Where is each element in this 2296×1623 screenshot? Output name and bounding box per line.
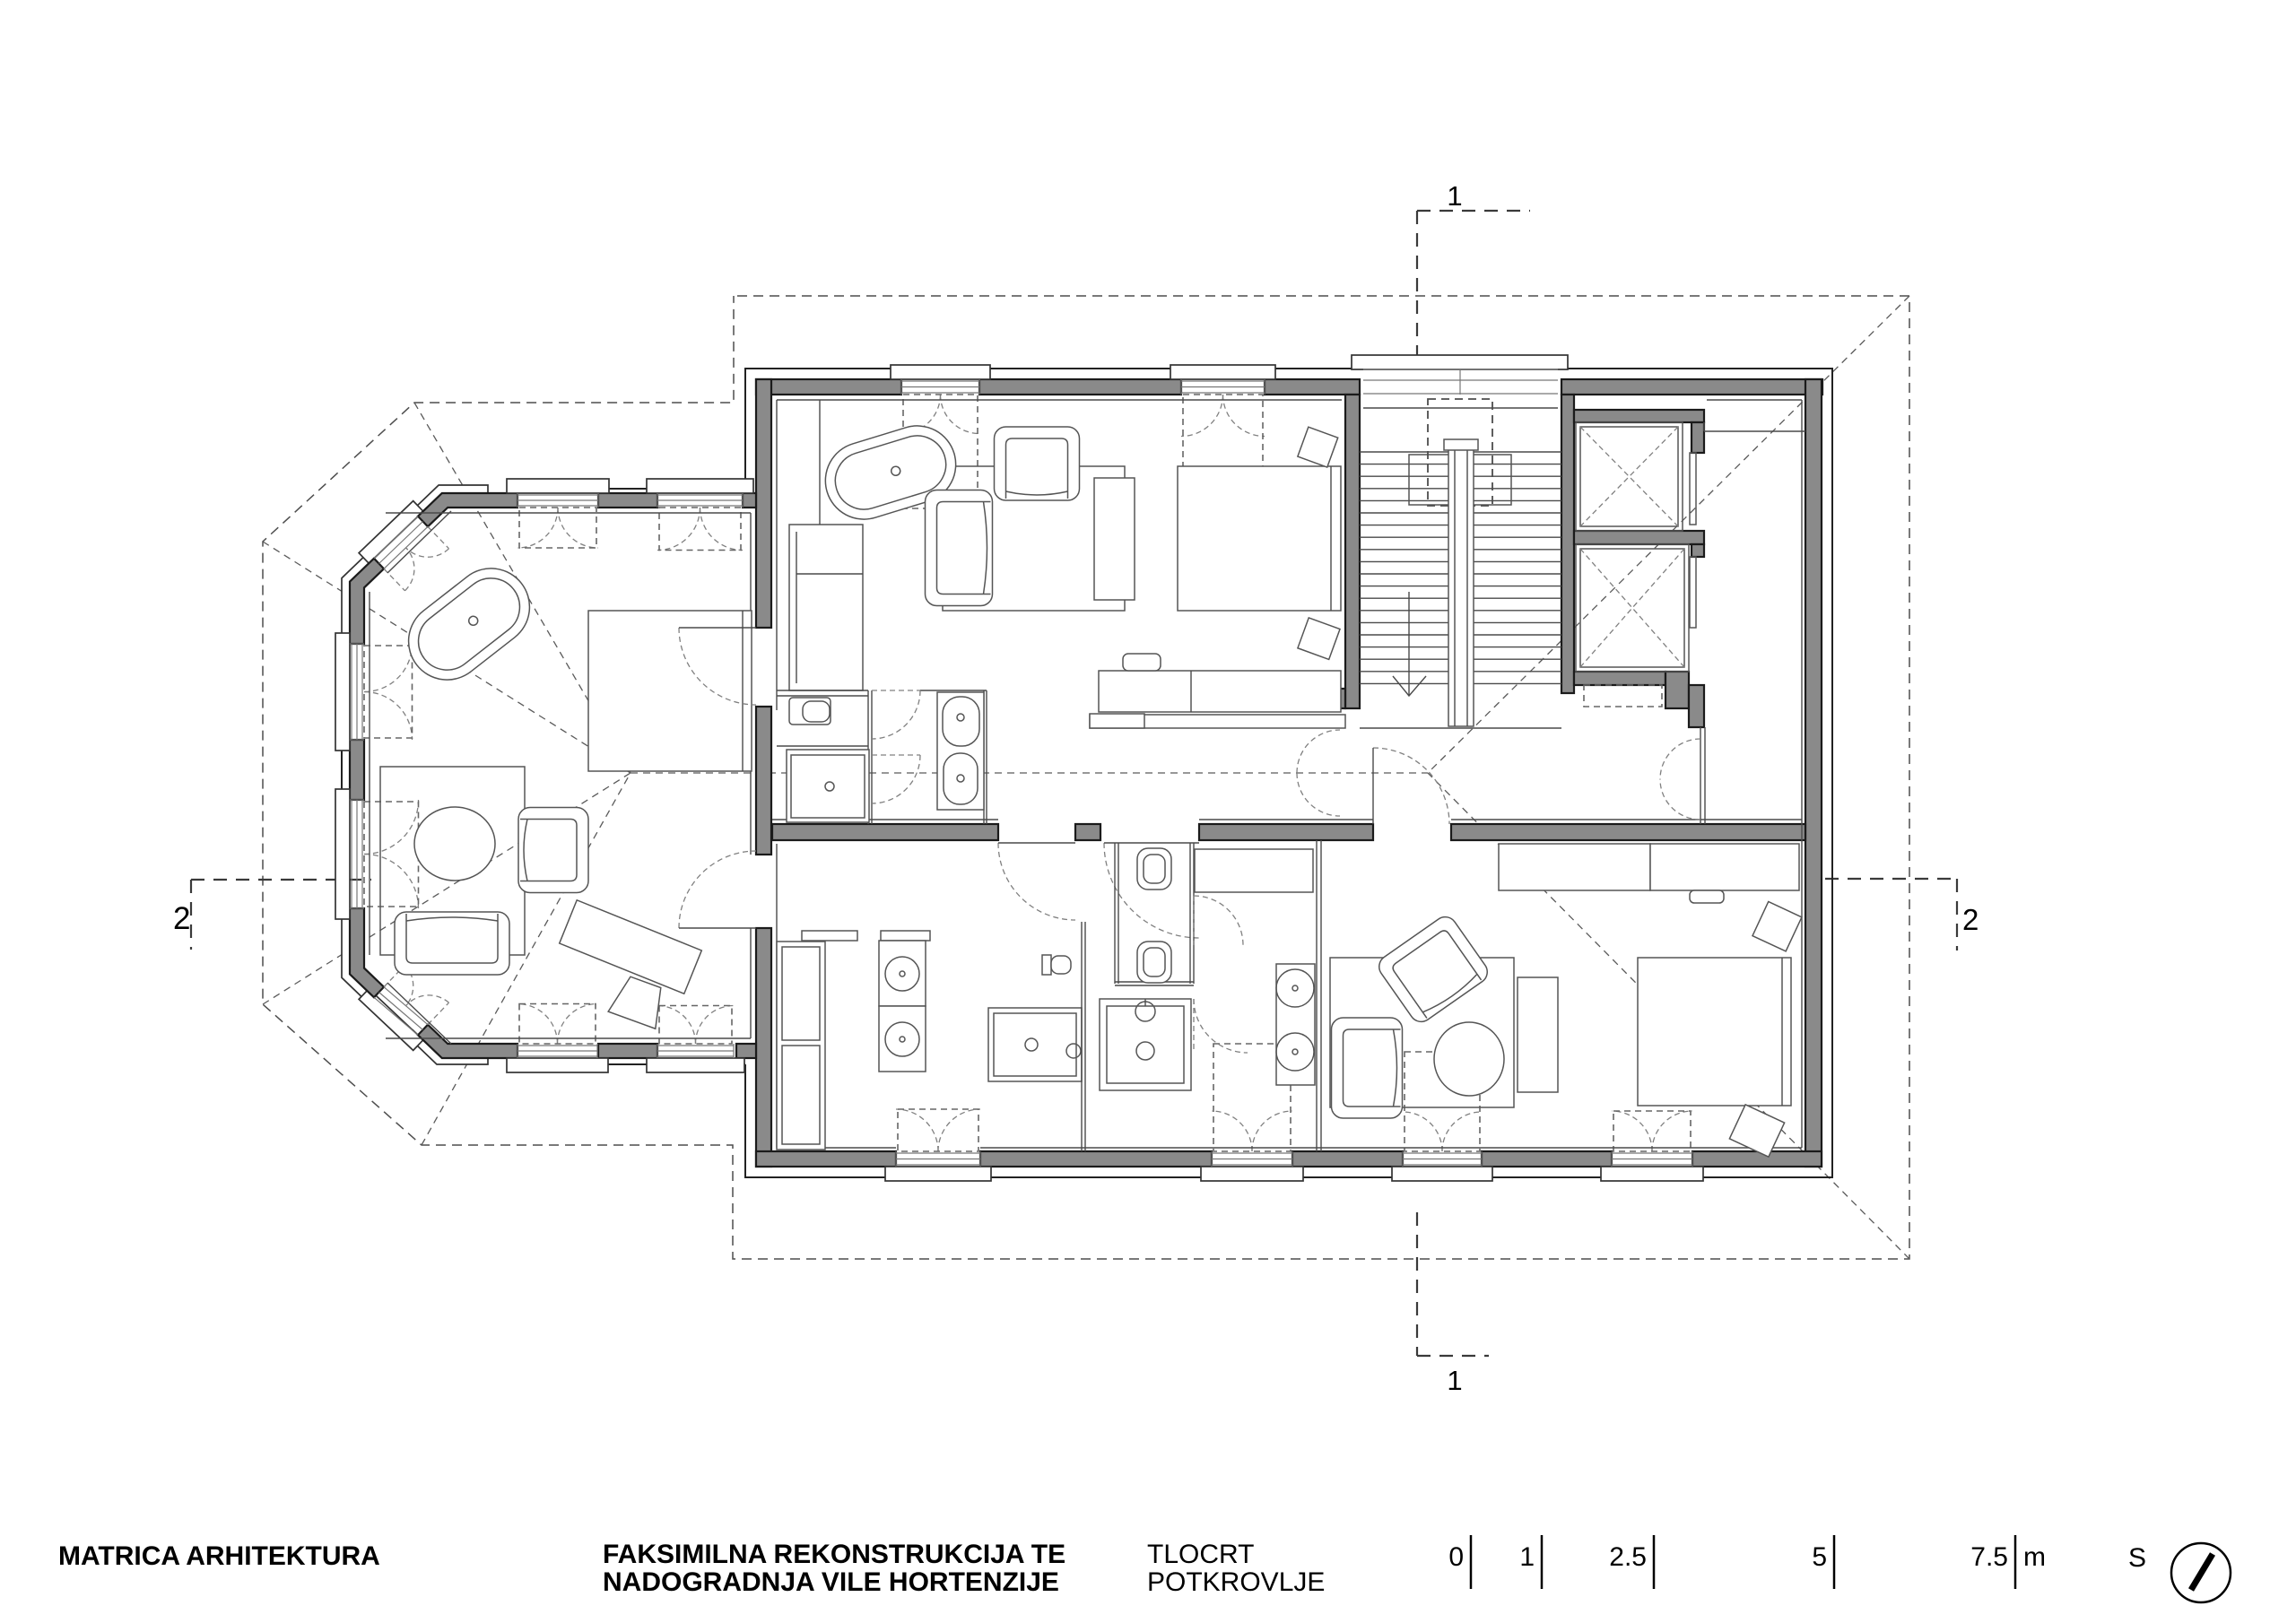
svg-text:TLOCRT: TLOCRT bbox=[1147, 1540, 1254, 1569]
svg-text:POTKROVLJE: POTKROVLJE bbox=[1147, 1567, 1325, 1597]
svg-text:2.5: 2.5 bbox=[1609, 1542, 1647, 1572]
svg-text:S: S bbox=[2128, 1543, 2146, 1573]
svg-text:NADOGRADNJA VILE HORTENZIJE: NADOGRADNJA VILE HORTENZIJE bbox=[603, 1567, 1059, 1597]
svg-text:2: 2 bbox=[1962, 903, 1979, 936]
svg-text:7.5: 7.5 bbox=[1970, 1542, 2008, 1572]
svg-text:5: 5 bbox=[1812, 1542, 1827, 1572]
svg-text:1: 1 bbox=[1447, 1365, 1462, 1396]
svg-text:MATRICA ARHITEKTURA: MATRICA ARHITEKTURA bbox=[58, 1541, 380, 1571]
svg-text:0: 0 bbox=[1448, 1542, 1464, 1572]
svg-text:m: m bbox=[2023, 1542, 2046, 1572]
svg-text:2: 2 bbox=[173, 901, 190, 936]
svg-text:FAKSIMILNA REKONSTRUKCIJA TE: FAKSIMILNA REKONSTRUKCIJA TE bbox=[603, 1540, 1065, 1569]
svg-text:1: 1 bbox=[1447, 180, 1462, 212]
svg-text:1: 1 bbox=[1519, 1542, 1535, 1572]
